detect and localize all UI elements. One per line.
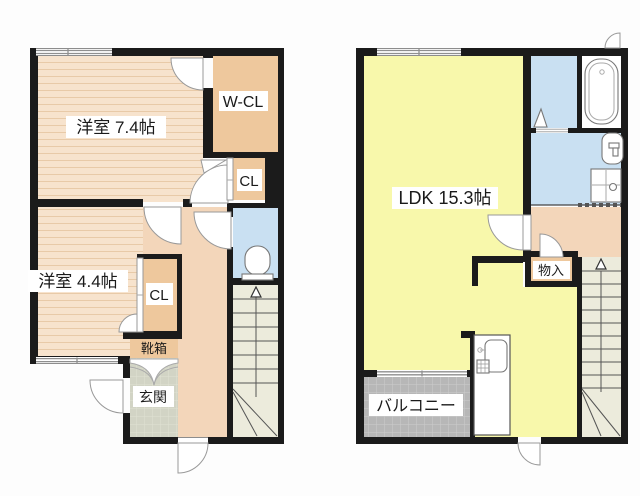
bath-vent-icon [605, 33, 620, 48]
wcl-label: W-CL [223, 94, 264, 111]
door-arc-floor2-entry [518, 443, 540, 465]
balcony-label: バルコニー [376, 398, 456, 415]
toilet-icon [242, 246, 273, 280]
ldk-label: LDK 15.3帖 [398, 188, 491, 208]
shoe-box-label: 靴箱 [141, 341, 167, 356]
bathtub-icon [585, 59, 618, 124]
floorplan-svg: 洋室 7.4帖 W-CL CL 洋室 4.4帖 CL 靴箱 玄関 [0, 0, 640, 496]
cl-lower-label: CL [149, 287, 168, 304]
door-arc-entrance-side [90, 380, 123, 413]
room74-label: 洋室 7.4帖 [76, 118, 155, 137]
washbasin-icon [602, 133, 623, 164]
floor2-plan: LDK 15.3帖 物入 バルコニー [356, 33, 628, 465]
ldk-door-leaf [523, 215, 531, 250]
window-balcony [377, 370, 467, 377]
ldk-floor [364, 56, 523, 371]
floorplan-canvas: 洋室 7.4帖 W-CL CL 洋室 4.4帖 CL 靴箱 玄関 [0, 0, 640, 496]
room44-label: 洋室 4.4帖 [38, 272, 117, 291]
entrance-label: 玄関 [139, 389, 167, 405]
closet-lower-door [137, 258, 143, 332]
washer-pan-icon [591, 169, 621, 202]
kitchen-unit [474, 335, 510, 435]
kitchen-grill-icon [477, 360, 489, 373]
cl-upper-label: CL [239, 173, 258, 190]
storage-label: 物入 [538, 263, 564, 278]
floor1-plan: 洋室 7.4帖 W-CL CL 洋室 4.4帖 CL 靴箱 玄関 [28, 48, 284, 473]
closet-upper-door [227, 158, 233, 200]
window-bottom-room44 [36, 357, 118, 364]
window-top-room74 [36, 49, 112, 56]
window-top-ldk [377, 49, 461, 56]
door-arc-front [178, 443, 208, 473]
ldk-floor [523, 287, 577, 437]
